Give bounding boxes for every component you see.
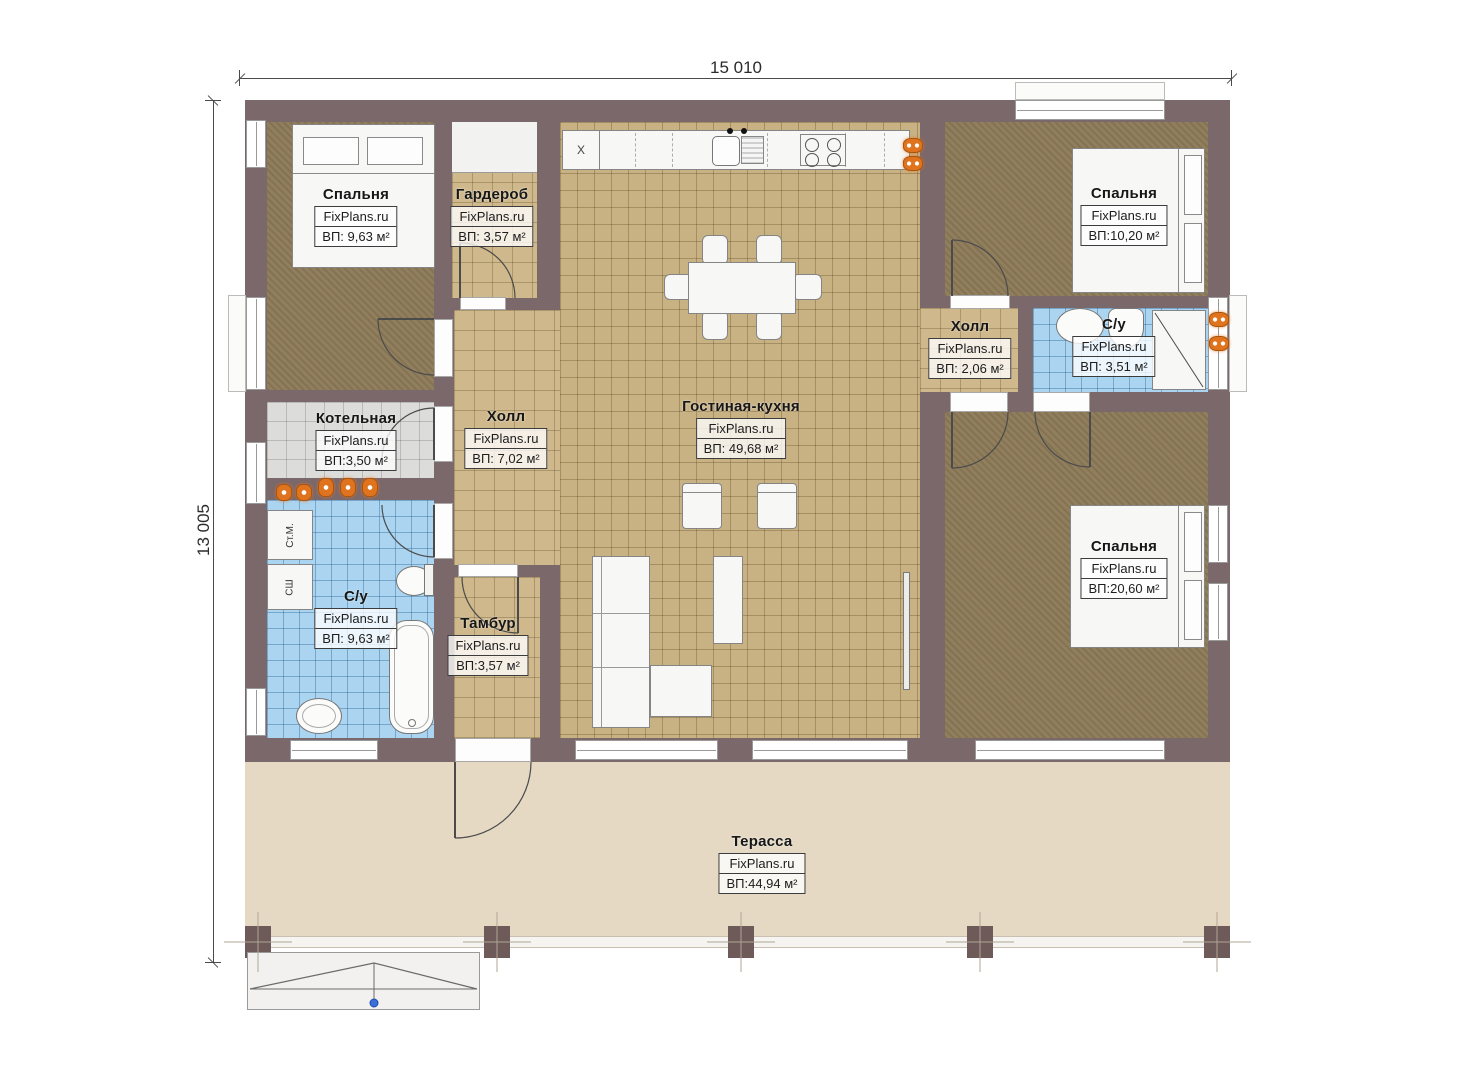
dimension-label-height: 13 005: [194, 504, 214, 556]
dining-chair: [702, 235, 728, 265]
wall-lamp: [340, 478, 356, 497]
faucet-dot: [727, 128, 733, 134]
stove-burner: [805, 138, 819, 152]
sink: [296, 698, 342, 734]
armchair-back: [683, 484, 721, 493]
wall-lamp: [1209, 336, 1229, 351]
bed-pillow: [1184, 155, 1202, 215]
wall-lamp: [903, 156, 923, 171]
window-sill: [1015, 82, 1165, 100]
window: [246, 297, 266, 390]
room-info-box: FixPlans.ru ВП: 3,57 м²: [450, 206, 533, 247]
stove: [800, 134, 846, 166]
room-label-vestibule: Тамбур FixPlans.ru ВП:3,57 м²: [447, 615, 528, 676]
brand-label: FixPlans.ru: [697, 419, 786, 438]
washing-machine-label: Ст.М.: [285, 523, 296, 548]
fridge-label: X: [577, 143, 585, 157]
room-info-box: FixPlans.ru ВП:3,50 м²: [315, 430, 396, 471]
door-threshold: [458, 564, 518, 577]
wall-lamp: [362, 478, 378, 497]
room-info-box: FixPlans.ru ВП: 2,06 м²: [928, 338, 1011, 379]
wall-lamp: [276, 484, 292, 501]
toilet-tank: [424, 564, 434, 596]
bed-blanket-line: [1178, 149, 1179, 292]
window: [975, 740, 1165, 760]
bed-pillow: [1184, 223, 1202, 283]
sofa-cushion-line: [593, 613, 649, 614]
room-info-box: FixPlans.ru ВП: 49,68 м²: [696, 418, 787, 459]
door-threshold: [1033, 392, 1090, 412]
wardrobe-shelf: [452, 122, 537, 173]
kitchen-sink: [712, 136, 740, 166]
steps-drawing: [248, 953, 479, 1009]
door-threshold: [950, 392, 1008, 412]
sofa-body: [592, 556, 650, 728]
dining-chair: [756, 235, 782, 265]
armchair: [757, 483, 797, 529]
brand-label: FixPlans.ru: [1081, 206, 1166, 225]
wall-lamp: [296, 484, 312, 501]
bathtub-drain: [408, 719, 416, 727]
room-name: С/у: [344, 588, 368, 605]
terrace-door-opening: [455, 738, 531, 762]
brand-label: FixPlans.ru: [465, 429, 546, 448]
stove-burner: [805, 153, 819, 167]
room-label-bathroom-right: С/у FixPlans.ru ВП: 3,51 м²: [1072, 316, 1155, 377]
room-info-box: FixPlans.ru ВП:20,60 м²: [1080, 558, 1167, 599]
window: [246, 688, 266, 736]
terrace-steps: [247, 952, 480, 1010]
sink-drainer: [741, 136, 764, 164]
room-name: Спальня: [1091, 185, 1157, 202]
bed-pillow: [367, 137, 423, 165]
window: [1015, 100, 1165, 120]
brand-label: FixPlans.ru: [1073, 337, 1154, 356]
room-label-bedroom-tl: Спальня FixPlans.ru ВП: 9,63 м²: [314, 186, 397, 247]
terrace-post: [967, 926, 993, 958]
counter-divider: [672, 133, 673, 167]
faucet-dot: [741, 128, 747, 134]
window: [246, 120, 266, 168]
room-info-box: FixPlans.ru ВП:3,57 м²: [447, 635, 528, 676]
window: [752, 740, 908, 760]
dimension-label-width: 15 010: [710, 58, 762, 78]
dining-chair: [702, 310, 728, 340]
sink-inner: [302, 704, 336, 728]
room-label-bedroom-br: Спальня FixPlans.ru ВП:20,60 м²: [1080, 538, 1167, 599]
dining-chair: [792, 274, 822, 300]
shower: [1152, 310, 1206, 390]
room-label-bedroom-tr: Спальня FixPlans.ru ВП:10,20 м²: [1080, 185, 1167, 246]
window: [290, 740, 378, 760]
counter-divider: [635, 133, 636, 167]
brand-label: FixPlans.ru: [929, 339, 1010, 358]
brand-label: FixPlans.ru: [448, 636, 527, 655]
terrace-post: [728, 926, 754, 958]
brand-label: FixPlans.ru: [315, 609, 396, 628]
room-name: Гардероб: [456, 186, 529, 203]
area-label: ВП:10,20 м²: [1081, 225, 1166, 245]
dryer: СШ: [267, 564, 313, 610]
dining-table: [688, 262, 796, 314]
area-label: ВП: 3,51 м²: [1073, 356, 1154, 376]
armchair: [682, 483, 722, 529]
window: [246, 442, 266, 504]
window: [1208, 583, 1228, 641]
area-label: ВП: 3,57 м²: [451, 226, 532, 246]
brand-label: FixPlans.ru: [719, 854, 804, 873]
room-name: Гостиная-кухня: [682, 398, 800, 415]
steps-marker-dot: [370, 999, 378, 1007]
terrace-post: [1204, 926, 1230, 958]
stove-burner: [827, 153, 841, 167]
room-info-box: FixPlans.ru ВП: 9,63 м²: [314, 608, 397, 649]
area-label: ВП:3,50 м²: [316, 450, 395, 470]
wall-lamp: [903, 138, 923, 153]
window-sill: [1229, 295, 1247, 392]
coffee-table: [713, 556, 743, 644]
room-info-box: FixPlans.ru ВП:10,20 м²: [1080, 205, 1167, 246]
room-label-living-kitchen: Гостиная-кухня FixPlans.ru ВП: 49,68 м²: [682, 398, 800, 459]
floor-plan-canvas: 15 010 13 005: [0, 0, 1474, 1080]
window: [575, 740, 718, 760]
bed-blanket-line: [293, 173, 434, 174]
stove-burner: [827, 138, 841, 152]
room-name: Терасса: [732, 833, 793, 850]
room-info-box: FixPlans.ru ВП: 3,51 м²: [1072, 336, 1155, 377]
wall-lamp: [1209, 312, 1229, 327]
window: [1208, 505, 1228, 563]
room-name: Спальня: [323, 186, 389, 203]
room-info-box: FixPlans.ru ВП: 9,63 м²: [314, 206, 397, 247]
sofa-chaise: [650, 665, 712, 717]
room-label-hall-main: Холл FixPlans.ru ВП: 7,02 м²: [464, 408, 547, 469]
bed-pillow: [303, 137, 359, 165]
bed-pillow: [1184, 580, 1202, 640]
window-sill: [228, 295, 246, 392]
dryer-label: СШ: [284, 579, 295, 595]
counter-divider: [767, 133, 768, 167]
room-label-terrace: Терасса FixPlans.ru ВП:44,94 м²: [718, 833, 805, 894]
armchair-back: [758, 484, 796, 493]
door-opening: [434, 319, 453, 377]
room-name: С/у: [1102, 316, 1126, 333]
counter-divider: [884, 133, 885, 167]
door-threshold: [460, 297, 506, 310]
area-label: ВП: 9,63 м²: [315, 628, 396, 648]
room-name: Холл: [951, 318, 989, 335]
brand-label: FixPlans.ru: [316, 431, 395, 450]
room-name: Тамбур: [460, 615, 516, 632]
area-label: ВП: 9,63 м²: [315, 226, 396, 246]
radiator: [903, 572, 910, 690]
area-label: ВП:3,57 м²: [448, 655, 527, 675]
room-label-wardrobe: Гардероб FixPlans.ru ВП: 3,57 м²: [450, 186, 533, 247]
brand-label: FixPlans.ru: [315, 207, 396, 226]
room-label-boiler: Котельная FixPlans.ru ВП:3,50 м²: [315, 410, 396, 471]
bathtub-inner: [394, 625, 429, 729]
door-opening: [434, 406, 453, 462]
door-opening: [434, 503, 453, 559]
terrace-post: [484, 926, 510, 958]
brand-label: FixPlans.ru: [451, 207, 532, 226]
room-name: Холл: [487, 408, 525, 425]
room-name: Спальня: [1091, 538, 1157, 555]
door-threshold: [950, 295, 1010, 309]
sofa-cushion-line: [593, 667, 649, 668]
dining-chair: [756, 310, 782, 340]
dimension-line-top: [240, 78, 1232, 79]
room-label-hall-small: Холл FixPlans.ru ВП: 2,06 м²: [928, 318, 1011, 379]
wall-lamp: [318, 478, 334, 497]
sofa-armrest-line: [601, 557, 602, 727]
brand-label: FixPlans.ru: [1081, 559, 1166, 578]
room-info-box: FixPlans.ru ВП:44,94 м²: [718, 853, 805, 894]
bed-blanket-line: [1178, 506, 1179, 647]
area-label: ВП:20,60 м²: [1081, 578, 1166, 598]
room-name: Котельная: [316, 410, 396, 427]
area-label: ВП: 7,02 м²: [465, 448, 546, 468]
washing-machine: Ст.М.: [267, 510, 313, 560]
area-label: ВП: 49,68 м²: [697, 438, 786, 458]
area-label: ВП: 2,06 м²: [929, 358, 1010, 378]
bed-pillow: [1184, 512, 1202, 572]
room-info-box: FixPlans.ru ВП: 7,02 м²: [464, 428, 547, 469]
room-label-bathroom-left: С/у FixPlans.ru ВП: 9,63 м²: [314, 588, 397, 649]
fridge: X: [562, 130, 600, 170]
area-label: ВП:44,94 м²: [719, 873, 804, 893]
